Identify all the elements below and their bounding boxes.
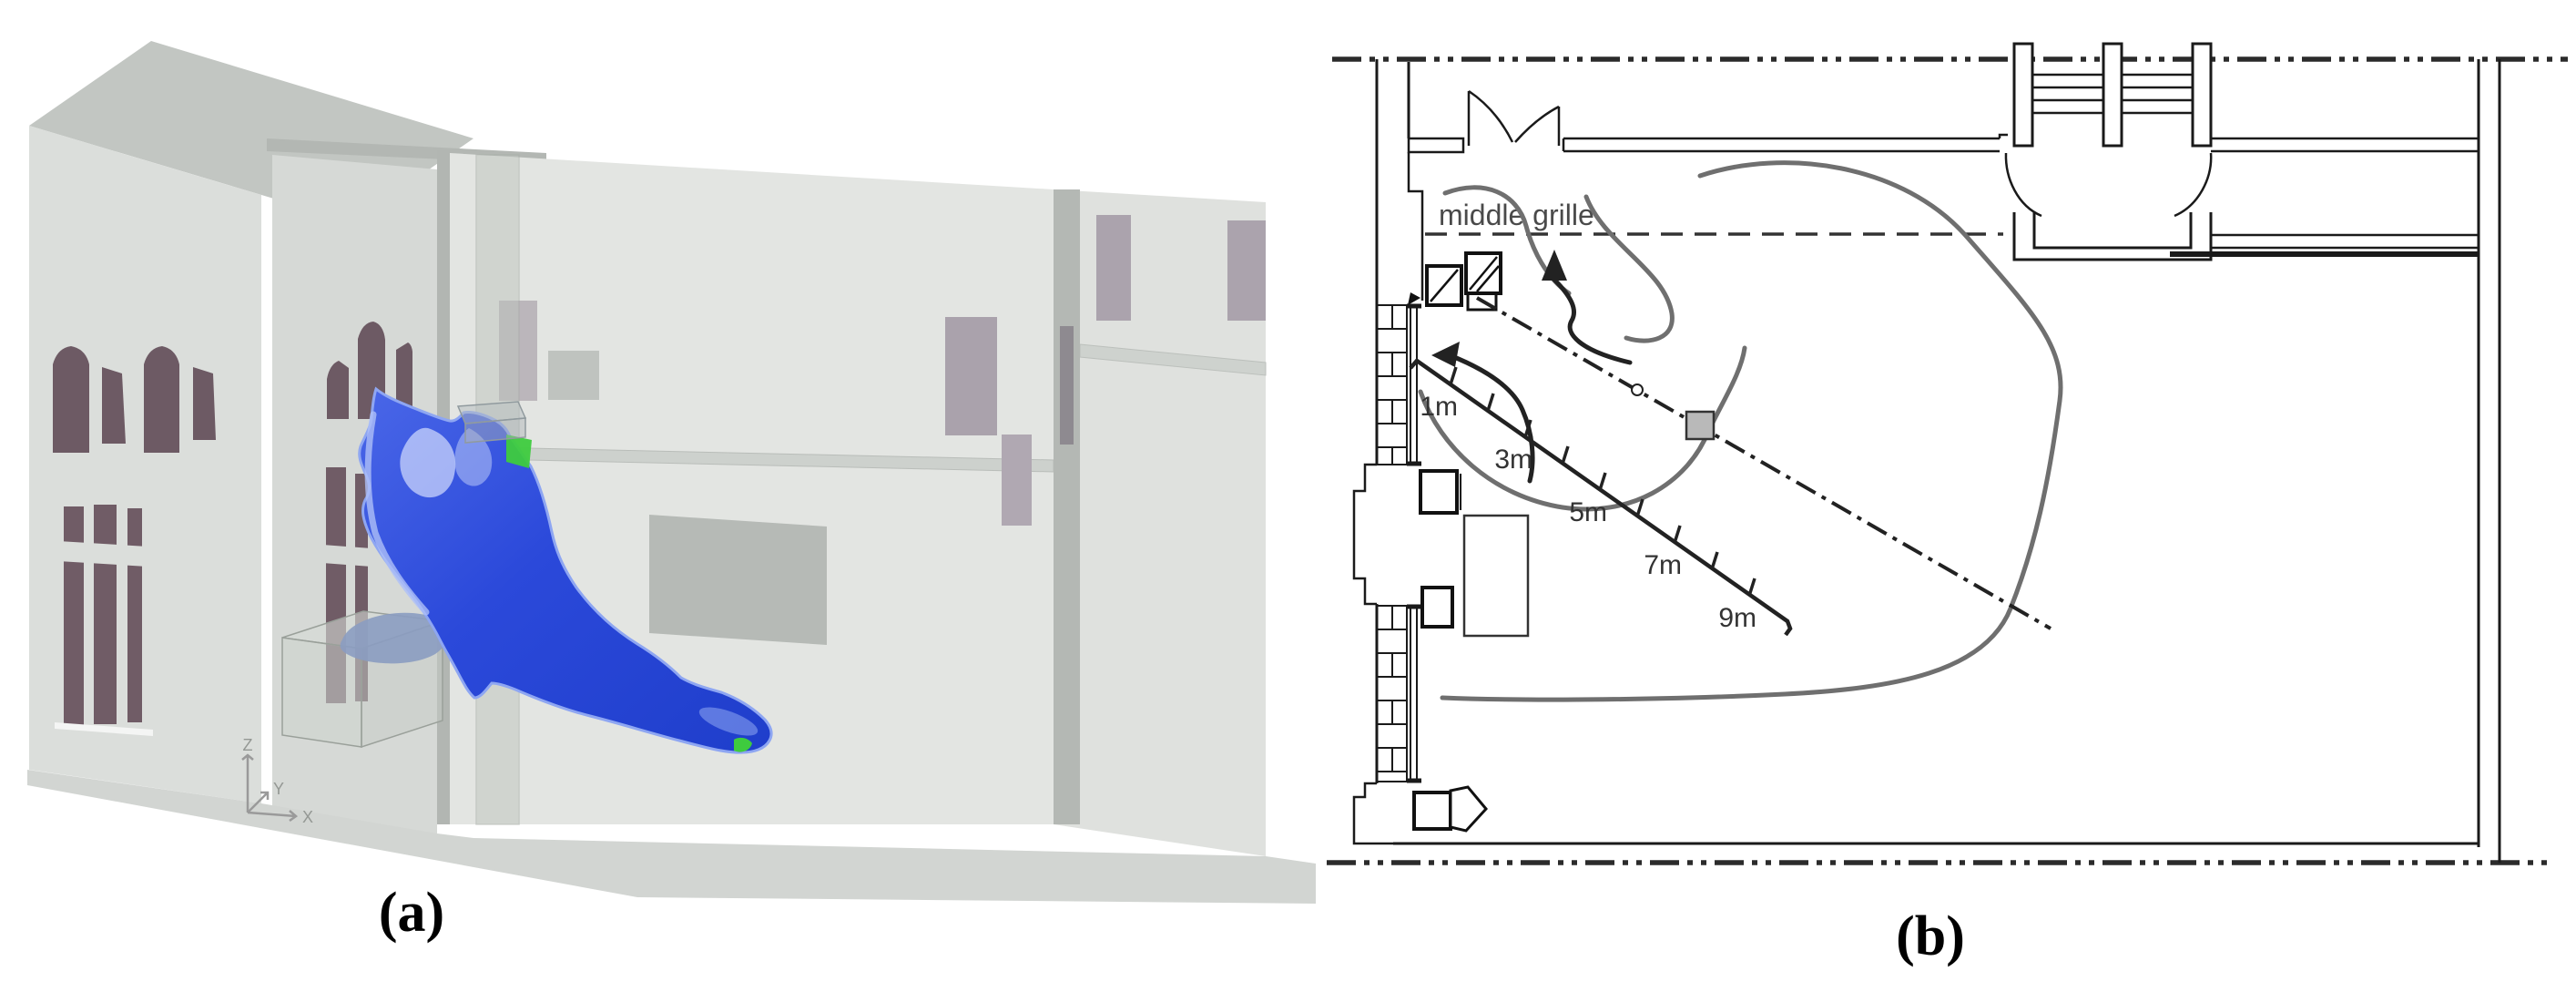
- distance-label-9m: 9m: [1718, 603, 1756, 633]
- two-panel-figure: Z Y X (a): [0, 0, 2576, 1002]
- tall-windows-left-facade: [64, 505, 142, 726]
- centerline-node: [1632, 384, 1643, 395]
- source-marker-square: [1686, 412, 1714, 439]
- left-wall: [1354, 59, 1422, 844]
- table-rectangle: [1464, 516, 1528, 636]
- interior-window-slit: [1060, 326, 1074, 445]
- door-swing: [1469, 91, 1512, 146]
- interior-window: [1227, 220, 1266, 321]
- entrance-vestibule: [2006, 44, 2479, 260]
- interior-window: [1002, 435, 1032, 526]
- door-swing: [2174, 153, 2211, 216]
- top-left-door: [1409, 91, 1559, 152]
- axis-x-label: X: [302, 808, 313, 826]
- figure-canvas: Z Y X (a): [0, 0, 2576, 1002]
- distance-label-1m: 1m: [1420, 392, 1458, 422]
- door-swing: [2006, 153, 2041, 216]
- stair-divider: [2103, 44, 2122, 146]
- north-wall: [1563, 135, 2008, 151]
- axis-y-label: Y: [273, 780, 284, 798]
- panel-a-3d-model: Z Y X (a): [27, 41, 1316, 944]
- panel-b-floor-plan: middle grille: [1327, 44, 2568, 967]
- far-post: [1054, 189, 1080, 824]
- left-wall-brick-pattern: [1377, 305, 1421, 782]
- panel-a-label: (a): [379, 882, 444, 944]
- distance-label-5m: 5m: [1569, 497, 1607, 527]
- interior-window: [1096, 215, 1131, 321]
- supply-grille-box: [458, 402, 525, 443]
- wall-shadow-panel: [548, 351, 599, 400]
- distance-label-3m: 3m: [1494, 445, 1532, 475]
- wall-arrow-tick: [1408, 292, 1420, 305]
- window-transom-band: [322, 545, 372, 567]
- interior-window: [945, 317, 997, 435]
- panel-b-label: (b): [1896, 905, 1965, 967]
- left-arrow-head: [1431, 342, 1460, 367]
- axis-z-label: Z: [243, 736, 253, 754]
- parapet-panel: [649, 515, 827, 645]
- distance-label-7m: 7m: [1644, 550, 1682, 580]
- pointing-device: [1451, 787, 1486, 831]
- door-swing: [1515, 107, 1559, 146]
- bay-protrusion: [1354, 465, 1377, 604]
